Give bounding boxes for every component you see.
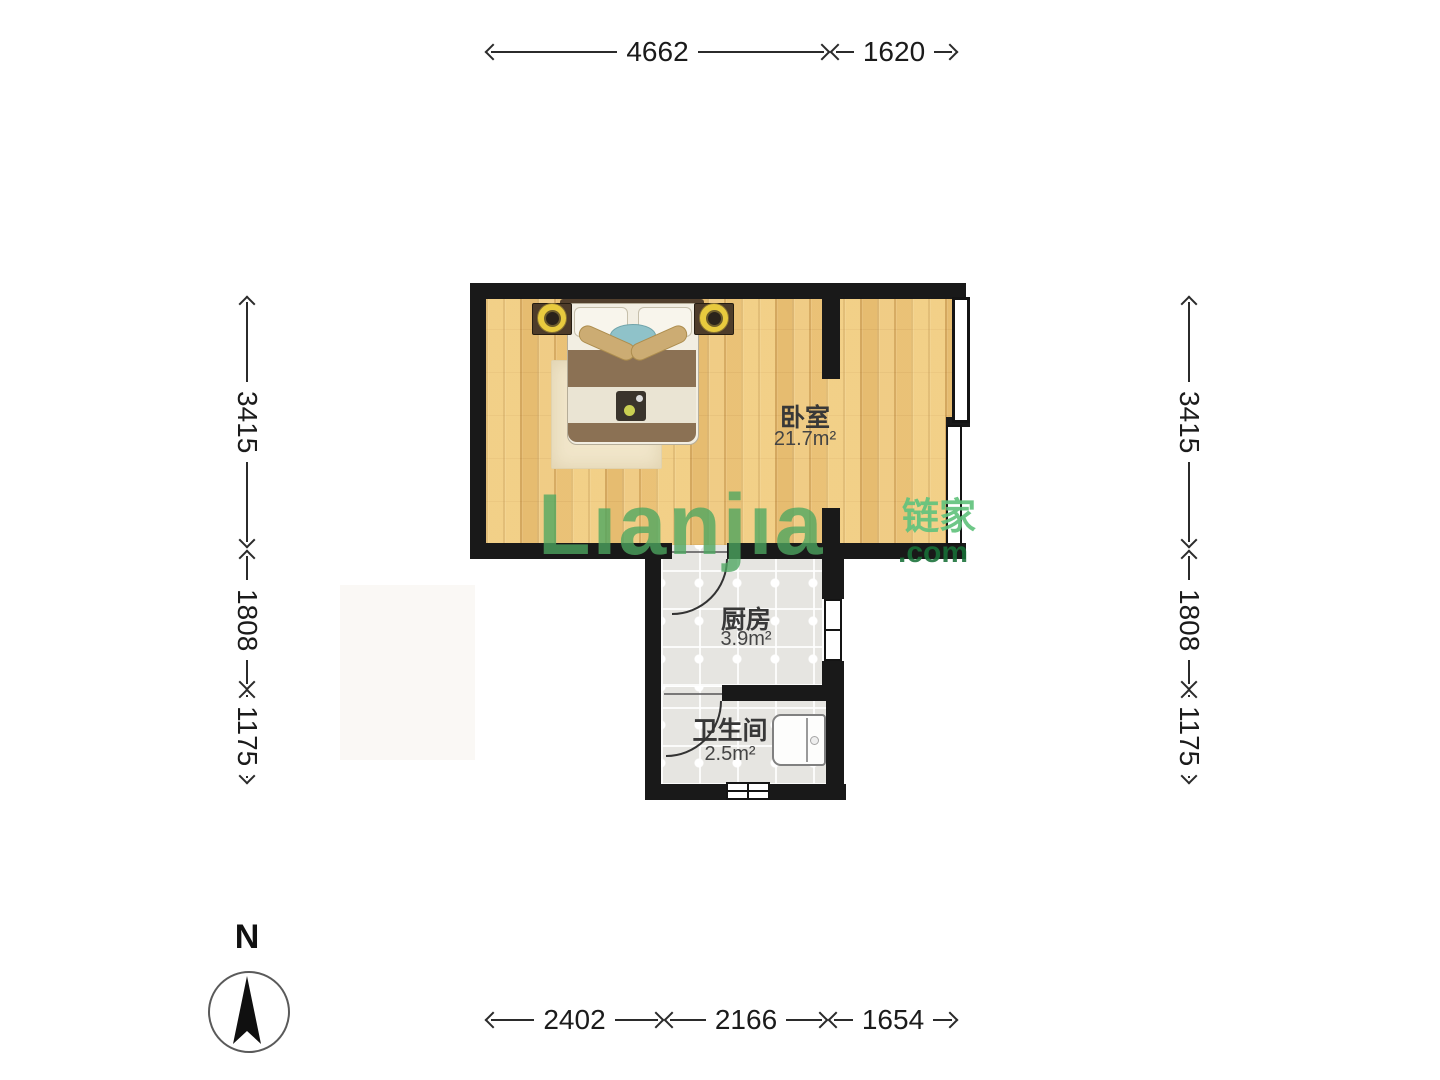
dimension-bottom-2: 2166 [666, 1005, 826, 1035]
wall-bedroom-left [470, 283, 486, 559]
arrowhead-down-icon [239, 532, 256, 549]
dimension-top-1: 4662 [487, 37, 828, 67]
floorplan-canvas: 卧室 21.7m² 厨房 3.9m² 卫生间 2.5m² 4662 1620 2… [0, 0, 1440, 1080]
wall-bedroom-bottom-right [727, 543, 966, 559]
wall-bedroom-bottom-left [470, 543, 672, 559]
arrowhead-right-icon [814, 44, 831, 61]
arrowhead-up-icon [239, 296, 256, 313]
wall-kitchen-right-upper [822, 559, 844, 599]
dimension-right-1: 3415 [1172, 298, 1206, 546]
arrowhead-down-icon [1181, 532, 1198, 549]
wall-bathroom-bottom-right [770, 784, 846, 800]
dimension-right-3: 1175 [1172, 691, 1206, 782]
dimension-right-2: 1808 [1172, 552, 1206, 688]
arrowhead-right-icon [648, 1012, 665, 1029]
arrowhead-left-icon [828, 1012, 845, 1029]
bathtub [772, 714, 826, 766]
lamp-left-icon [537, 303, 567, 333]
dimension-left-2: 1808 [230, 552, 264, 688]
arrowhead-up-icon [1181, 550, 1198, 567]
dimension-bottom-1: 2402 [487, 1005, 662, 1035]
wall-bedroom-top [470, 283, 966, 299]
dimension-left-3: 1175 [230, 691, 264, 782]
arrowhead-right-icon [942, 44, 959, 61]
arrowhead-up-icon [239, 550, 256, 567]
compass-north-label: N [227, 918, 267, 957]
lamp-right-icon [699, 303, 729, 333]
bedroom-area: 21.7m² [750, 428, 860, 451]
tray-flower [624, 405, 635, 416]
kitchen-area: 3.9m² [696, 628, 796, 651]
dimension-left-1: 3415 [230, 298, 264, 546]
window-kitchen [824, 599, 842, 661]
dimension-top-2: 1620 [832, 37, 956, 67]
window-bedroom-lower [946, 425, 962, 545]
bathroom-area: 2.5m² [680, 743, 780, 766]
arrowhead-left-icon [830, 44, 847, 61]
window-bathroom [726, 782, 770, 800]
arrowhead-right-icon [942, 1012, 959, 1029]
wall-kitchen-left [645, 543, 661, 800]
arrowhead-left-icon [485, 44, 502, 61]
compass-circle [208, 971, 290, 1053]
window-bedroom-upper [952, 297, 970, 423]
dimension-bottom-3: 1654 [830, 1005, 956, 1035]
arrowhead-left-icon [664, 1012, 681, 1029]
bed-foot-blanket [568, 423, 696, 442]
wall-bathroom-right [826, 701, 844, 786]
wall-partition-lower-stub [822, 508, 840, 544]
tray-cup [636, 395, 643, 402]
neighbor-unit-faint-outline [340, 585, 475, 760]
wall-partition-upper-stub [822, 299, 840, 379]
arrowhead-left-icon [485, 1012, 502, 1029]
arrowhead-up-icon [1181, 296, 1198, 313]
bathroom-label: 卫生间 [680, 711, 780, 747]
arrowhead-right-icon [812, 1012, 829, 1029]
wall-kitchen-bath-divider [722, 685, 844, 701]
wall-bathroom-bottom-left [645, 784, 726, 800]
